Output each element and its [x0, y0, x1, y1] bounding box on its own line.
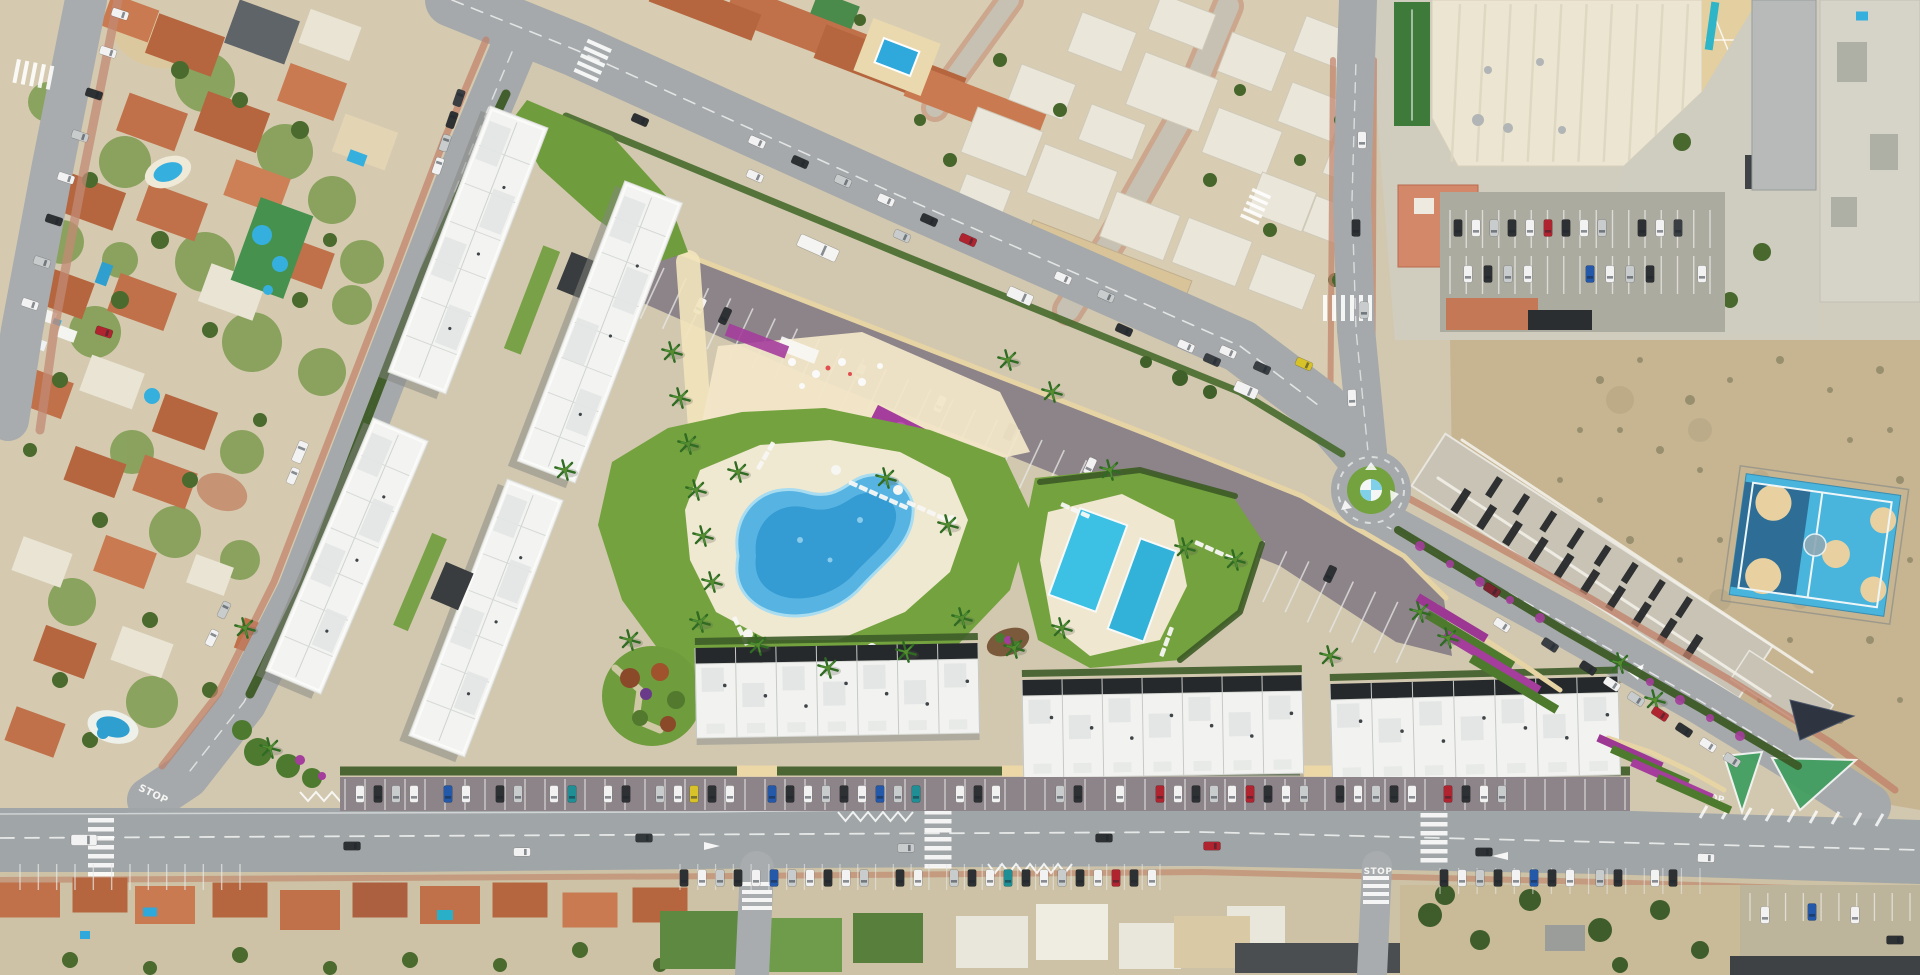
roadD-car: [1204, 842, 1221, 851]
right-edge-flowers-dot: [1446, 560, 1454, 568]
roadD-van: [71, 835, 97, 846]
zebra-bar: [925, 819, 952, 824]
zebra-bar: [1421, 822, 1448, 827]
car-body: [1096, 834, 1113, 843]
car-body: [1504, 266, 1513, 283]
solar-roof: [1528, 310, 1592, 330]
car-body: [604, 786, 613, 803]
zebra-bar: [1421, 858, 1448, 863]
car-windshield: [623, 796, 629, 799]
car-body: [1808, 904, 1817, 921]
dev-bottom-cars-car: [1074, 786, 1083, 803]
car-body: [1698, 266, 1707, 283]
zebra-bar: [88, 872, 114, 877]
car-body: [1204, 842, 1221, 851]
car-windshield: [727, 796, 733, 799]
br-car: [1808, 904, 1817, 921]
unit-patio: [1589, 761, 1608, 771]
dev-bottom-cars-car: [1390, 786, 1399, 803]
car-body: [734, 870, 743, 887]
unit-patio: [787, 722, 805, 732]
car-body: [716, 870, 725, 887]
car-windshield: [987, 880, 993, 883]
car-body: [1887, 936, 1904, 945]
right-edge-flowers-dot: [1506, 596, 1514, 604]
car-body: [514, 786, 523, 803]
zebra-bar: [1332, 295, 1336, 321]
car-windshield: [1852, 917, 1858, 920]
zebra-bar: [1350, 295, 1354, 321]
dirt-scrub-dot: [1896, 476, 1904, 484]
car-windshield: [975, 796, 981, 799]
tl-trees-dot: [52, 672, 68, 688]
tl-trees-dot: [232, 92, 248, 108]
townhouse-row: [1330, 666, 1621, 788]
industrial-cars-row2-car: [1698, 266, 1707, 283]
car-body: [1300, 786, 1309, 803]
dirt-patches-dot: [1606, 386, 1634, 414]
palm-trunk: [710, 580, 714, 584]
car-windshield: [393, 796, 399, 799]
south-parked-cars-car: [1669, 870, 1678, 887]
car-body: [1656, 220, 1665, 237]
dev-bottom-cars-car: [604, 786, 613, 803]
car-body: [752, 870, 761, 887]
car-windshield: [825, 880, 831, 883]
dev-bottom-cars-car: [374, 786, 383, 803]
south-parked-cars-car: [1614, 870, 1623, 887]
car-windshield: [1113, 880, 1119, 883]
industrial-cars-row2-car: [1586, 266, 1595, 283]
car-body: [1598, 220, 1607, 237]
dirt-scrub-dot: [1617, 427, 1623, 433]
unit-patio: [747, 723, 765, 733]
zebra-bar: [1341, 295, 1345, 321]
car-body: [690, 786, 699, 803]
tm-trees-dot: [1263, 223, 1277, 237]
car-body: [860, 870, 869, 887]
car-windshield: [1581, 230, 1587, 233]
dirt-scrub-dot: [1685, 395, 1695, 405]
palm-trunk: [701, 534, 705, 538]
dev-bottom-cars-car: [356, 786, 365, 803]
warehouse-ac-units-dot: [1472, 114, 1484, 126]
car-body: [1530, 870, 1539, 887]
dev-bottom-cars-car: [786, 786, 795, 803]
car-body: [71, 835, 97, 846]
industrial-cars-row1-car: [1598, 220, 1607, 237]
south-parked-cars-car: [1548, 870, 1557, 887]
bl-trees-dot: [402, 952, 418, 968]
zebra-bar: [88, 818, 114, 823]
bl-house: [493, 883, 548, 918]
bl-trees-dot: [62, 952, 78, 968]
dirt-scrub-dot: [1626, 536, 1634, 544]
bl-house: [563, 893, 618, 928]
palm-trunk: [1012, 646, 1016, 650]
dirt-scrub-dot: [1866, 636, 1874, 644]
south-parked-cars-car: [1058, 870, 1067, 887]
palm-trunk: [1446, 636, 1450, 640]
industrial-cars-row2-car: [1464, 266, 1473, 283]
car-windshield: [1627, 276, 1633, 279]
palm-trunk: [826, 666, 830, 670]
corner-garden-flowers-dot: [295, 755, 305, 765]
car-body: [1354, 786, 1363, 803]
unit-patio: [1342, 767, 1361, 777]
tl-garden-patches-dot: [222, 312, 282, 372]
car-body: [636, 834, 653, 843]
dev-bottom-cars-car: [1228, 786, 1237, 803]
car-windshield: [843, 880, 849, 883]
dev-bottom-cars-car: [496, 786, 505, 803]
townhouse-row: [695, 633, 980, 745]
south-parked-cars-car: [842, 870, 851, 887]
right-building-courtyard: [1837, 42, 1867, 82]
palm-trunk: [243, 626, 247, 630]
round-garden-trees-green-dot: [667, 691, 685, 709]
zebra-bar: [925, 855, 952, 860]
industrial-cars-row1-car: [1674, 220, 1683, 237]
car-windshield: [1699, 276, 1705, 279]
car-body: [1697, 853, 1714, 862]
unit-patio: [1033, 763, 1051, 773]
pool-sparkle-dot: [857, 517, 863, 523]
car-body: [726, 786, 735, 803]
palm-trunk: [698, 620, 702, 624]
unit-patio: [1153, 761, 1171, 771]
car-body: [1674, 220, 1683, 237]
playground-equipment-dot: [838, 358, 846, 366]
south-parked-cars-car: [1076, 870, 1085, 887]
bm-white-building: [1036, 904, 1108, 960]
playground-equipment-dot: [799, 383, 805, 389]
car-windshield: [1477, 880, 1483, 883]
south-parked-cars-car: [1494, 870, 1503, 887]
south-parked-cars-car: [1651, 870, 1660, 887]
gray-building: [1752, 0, 1816, 190]
unit-roof-patch: [1460, 716, 1483, 741]
palm-trunk: [670, 350, 674, 354]
dev-bottom-cars-car: [708, 786, 717, 803]
dirt-scrub-dot: [1847, 437, 1853, 443]
car-body: [876, 786, 885, 803]
tl-pool-round: [144, 388, 160, 404]
dev-bottom-cars-car: [514, 786, 523, 803]
round-garden-trees-rust-dot: [660, 716, 676, 732]
car-body: [858, 786, 867, 803]
umbrellas-dot: [831, 465, 841, 475]
br-plaza-trees-dot: [1435, 885, 1455, 905]
warehouse-ac-units-dot: [1484, 66, 1492, 74]
car-windshield: [1441, 880, 1447, 883]
tl-garden-patches-dot: [332, 285, 372, 325]
tl-garden-patches-dot: [340, 240, 384, 284]
car-body: [1408, 786, 1417, 803]
car-body: [514, 848, 531, 857]
dev-bottom-cars-car: [1174, 786, 1183, 803]
car-windshield: [1809, 914, 1815, 917]
car-windshield: [709, 796, 715, 799]
zebra-bar: [88, 863, 114, 868]
roadA-trees-dot: [1172, 370, 1188, 386]
car-windshield: [753, 880, 759, 883]
car-body: [1596, 870, 1605, 887]
car-body: [674, 786, 683, 803]
right-edge-flowers-dot: [1535, 613, 1545, 623]
palm-trunk: [1328, 654, 1332, 658]
zebra-bar: [1363, 900, 1389, 904]
tl-trees-dot: [92, 512, 108, 528]
car-body: [1056, 786, 1065, 803]
tl-trees-dot: [111, 291, 129, 309]
car-windshield: [1409, 796, 1415, 799]
car-body: [1352, 220, 1361, 237]
playground-equipment-color-dot: [848, 372, 852, 376]
car-windshield: [1057, 796, 1063, 799]
palm-trunk: [268, 746, 272, 750]
car-body: [1347, 389, 1356, 406]
br-plaza-trees-dot: [1691, 941, 1709, 959]
car-windshield: [1607, 276, 1613, 279]
zebra-bar: [742, 898, 772, 902]
dirt-scrub-dot: [1697, 467, 1703, 473]
zebra-bar: [1421, 831, 1448, 836]
car-body: [698, 870, 707, 887]
car-body: [1174, 786, 1183, 803]
dev-bottom-cars-car: [768, 786, 777, 803]
unit-patio: [1073, 763, 1091, 773]
car-body: [1246, 786, 1255, 803]
tl-garden-patches-dot: [220, 430, 264, 474]
car-windshield: [805, 796, 811, 799]
bl-house: [353, 883, 408, 918]
br-plaza-trees-dot: [1418, 903, 1442, 927]
south-parked-cars-car: [1094, 870, 1103, 887]
car-body: [914, 870, 923, 887]
car-windshield: [1359, 142, 1365, 145]
car-body: [1464, 266, 1473, 283]
car-body: [462, 786, 471, 803]
car-windshield: [1527, 230, 1533, 233]
car-windshield: [1157, 796, 1163, 799]
dev-bottom-cars-car: [656, 786, 665, 803]
car-windshield: [1455, 230, 1461, 233]
roadD-car: [344, 842, 361, 851]
dev-bottom-cars-car: [1156, 786, 1165, 803]
car-body: [1390, 786, 1399, 803]
south-parked-cars-car: [986, 870, 995, 887]
plaza-trees-dot: [1753, 243, 1771, 261]
tm-trees-dot: [943, 153, 957, 167]
dirt-patches-dot: [1688, 418, 1712, 442]
car-body: [1336, 786, 1345, 803]
industrial-cars-row1-car: [1526, 220, 1535, 237]
car-body: [1074, 786, 1083, 803]
car-body: [708, 786, 717, 803]
dev-bottom-cars-car: [1480, 786, 1489, 803]
car-body: [1484, 266, 1493, 283]
dirt-scrub-dot: [1677, 557, 1683, 563]
south-parked-cars-car: [914, 870, 923, 887]
palm-trunk: [1618, 661, 1622, 665]
roadB-car: [1360, 302, 1369, 319]
south-parked-cars-car: [1130, 870, 1139, 887]
car-body: [1112, 870, 1121, 887]
dirt-scrub-dot: [1656, 446, 1664, 454]
car-body: [1626, 266, 1635, 283]
dirt-scrub-dot: [1577, 427, 1583, 433]
car-windshield: [1077, 880, 1083, 883]
right-edge-flowers-dot: [1415, 541, 1425, 551]
car-windshield: [1247, 796, 1253, 799]
car-body: [1372, 786, 1381, 803]
palm-trunk: [1653, 698, 1657, 702]
playground-equipment-dot: [877, 363, 883, 369]
industrial-cars-row2-car: [1626, 266, 1635, 283]
car-windshield: [1265, 796, 1271, 799]
tl-minigolf-ponds-dot: [252, 225, 272, 245]
car-windshield: [895, 796, 901, 799]
car-windshield: [1495, 880, 1501, 883]
car-windshield: [787, 796, 793, 799]
unit-roof-patch: [1419, 701, 1442, 726]
car-windshield: [515, 796, 521, 799]
unit-patio: [706, 723, 724, 733]
dev-bottom-cars-car: [392, 786, 401, 803]
tl-garden-patches-dot: [298, 348, 346, 396]
unit-roof-patch: [782, 666, 805, 690]
dev-bottom-cars-car: [858, 786, 867, 803]
unit-patio: [1384, 766, 1403, 776]
car-windshield: [789, 880, 795, 883]
zebra-bar: [1421, 840, 1448, 845]
dev-bottom-cars-car: [690, 786, 699, 803]
car-windshield: [1005, 880, 1011, 883]
planted-island-green-dot: [995, 633, 1005, 643]
zebra-bar: [88, 827, 114, 832]
car-windshield: [1283, 796, 1289, 799]
unit-roof-patch: [823, 681, 846, 705]
unit-roof-patch: [1069, 715, 1091, 739]
right-edge-flowers-dot: [1735, 731, 1745, 741]
tl-garden-patches-dot: [126, 676, 178, 728]
car-windshield: [1349, 400, 1355, 403]
car-windshield: [1491, 230, 1497, 233]
car-windshield: [1355, 796, 1361, 799]
car-windshield: [1499, 796, 1505, 799]
palm-trunk: [884, 476, 888, 480]
round-garden-trees-red: [651, 663, 669, 681]
car-body: [1526, 220, 1535, 237]
dirt-scrub-dot: [1907, 557, 1913, 563]
car-body: [1076, 870, 1085, 887]
tl-trees-dot: [292, 292, 308, 308]
car-windshield: [657, 796, 663, 799]
industrial-cars-row1-car: [1454, 220, 1463, 237]
tm-trees-dot: [993, 53, 1007, 67]
car-body: [1004, 870, 1013, 887]
car-body: [410, 786, 419, 803]
car-body: [950, 870, 959, 887]
br-plaza-trees-dot: [1650, 900, 1670, 920]
tl-garden-patches-dot: [99, 136, 151, 188]
bl-pool: [143, 908, 157, 917]
car-windshield: [1647, 276, 1653, 279]
bl-trees-dot: [143, 961, 157, 975]
palm-trunk: [736, 470, 740, 474]
dev-bottom-cars-car: [1210, 786, 1219, 803]
car-body: [1210, 786, 1219, 803]
palm-trunk: [628, 638, 632, 642]
dev-bottom-cars-car: [840, 786, 849, 803]
dev-bottom-cars-car: [410, 786, 419, 803]
tm-trees-dot: [1294, 154, 1306, 166]
bl-trees-dot: [323, 961, 337, 975]
unit-patio: [1233, 760, 1251, 770]
palm-trunk: [1050, 390, 1054, 394]
tl-minigolf-ponds-dot: [263, 285, 273, 295]
tm-trees-dot: [1203, 173, 1217, 187]
dev-bottom-cars-car: [1336, 786, 1345, 803]
palm-trunk: [1060, 626, 1064, 630]
south-parked-cars-car: [680, 870, 689, 887]
car-body: [1508, 220, 1517, 237]
car-windshield: [1463, 796, 1469, 799]
car-body: [680, 870, 689, 887]
car-body: [1524, 266, 1533, 283]
car-body: [1669, 870, 1678, 887]
industrial-cars-row2-car: [1606, 266, 1615, 283]
industrial-cars-row1-car: [1544, 220, 1553, 237]
dev-bottom-cars-car: [444, 786, 453, 803]
dev-bottom-cars-car: [1462, 786, 1471, 803]
south-parked-cars-car: [1566, 870, 1575, 887]
dev-bottom-cars-car: [1498, 786, 1507, 803]
unit-roof-patch: [1583, 697, 1606, 722]
dev-bottom-cars-car: [894, 786, 903, 803]
car-windshield: [524, 849, 527, 855]
car-windshield: [1531, 880, 1537, 883]
car-windshield: [569, 796, 575, 799]
unit-patio: [868, 721, 886, 731]
industrial-cars-row2-car: [1646, 266, 1655, 283]
roadD-car: [514, 848, 531, 857]
car-body: [1058, 870, 1067, 887]
tl-trees-dot: [323, 233, 337, 247]
palm-trunk: [1108, 468, 1112, 472]
br-plaza-trees-dot: [1612, 957, 1628, 973]
industrial-cars-row2-car: [1484, 266, 1493, 283]
car-body: [898, 844, 915, 853]
car-windshield: [1657, 230, 1663, 233]
car-windshield: [375, 796, 381, 799]
south-parked-cars-car: [752, 870, 761, 887]
umbrellas-dot: [893, 485, 903, 495]
zebra-bar: [1421, 849, 1448, 854]
dev-bottom-cars-car: [804, 786, 813, 803]
dev-bottom-cars-car: [1246, 786, 1255, 803]
car-windshield: [1545, 230, 1551, 233]
car-windshield: [735, 880, 741, 883]
dirt-scrub-dot: [1776, 356, 1784, 364]
car-body: [1444, 786, 1453, 803]
car-body: [1094, 870, 1103, 887]
unit-roof-patch: [1543, 714, 1566, 739]
dev-bottom-cars-car: [1264, 786, 1273, 803]
car-body: [894, 786, 903, 803]
round-garden-trees-rust-dot: [620, 668, 640, 688]
